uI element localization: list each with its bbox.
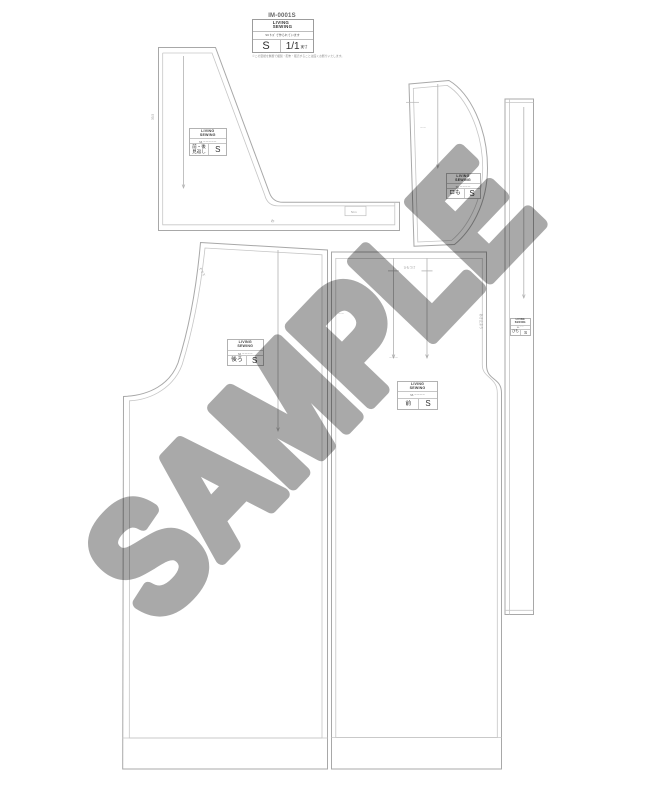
svg-text:SAMPLE: SAMPLE: [53, 121, 570, 651]
